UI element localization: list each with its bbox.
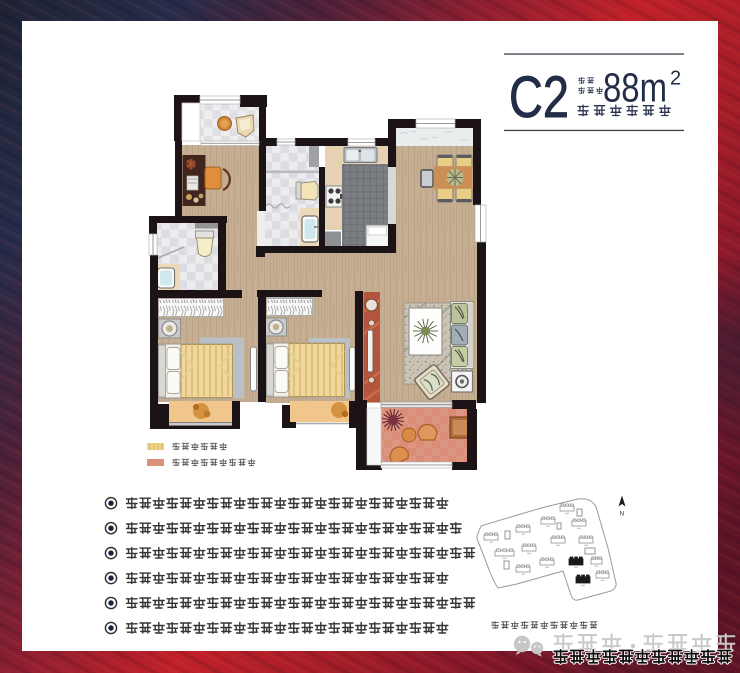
svg-text:88m: 88m [603,65,667,111]
svg-text:N: N [620,511,625,518]
svg-text:C2: C2 [509,65,569,130]
svg-text:2: 2 [670,68,681,90]
